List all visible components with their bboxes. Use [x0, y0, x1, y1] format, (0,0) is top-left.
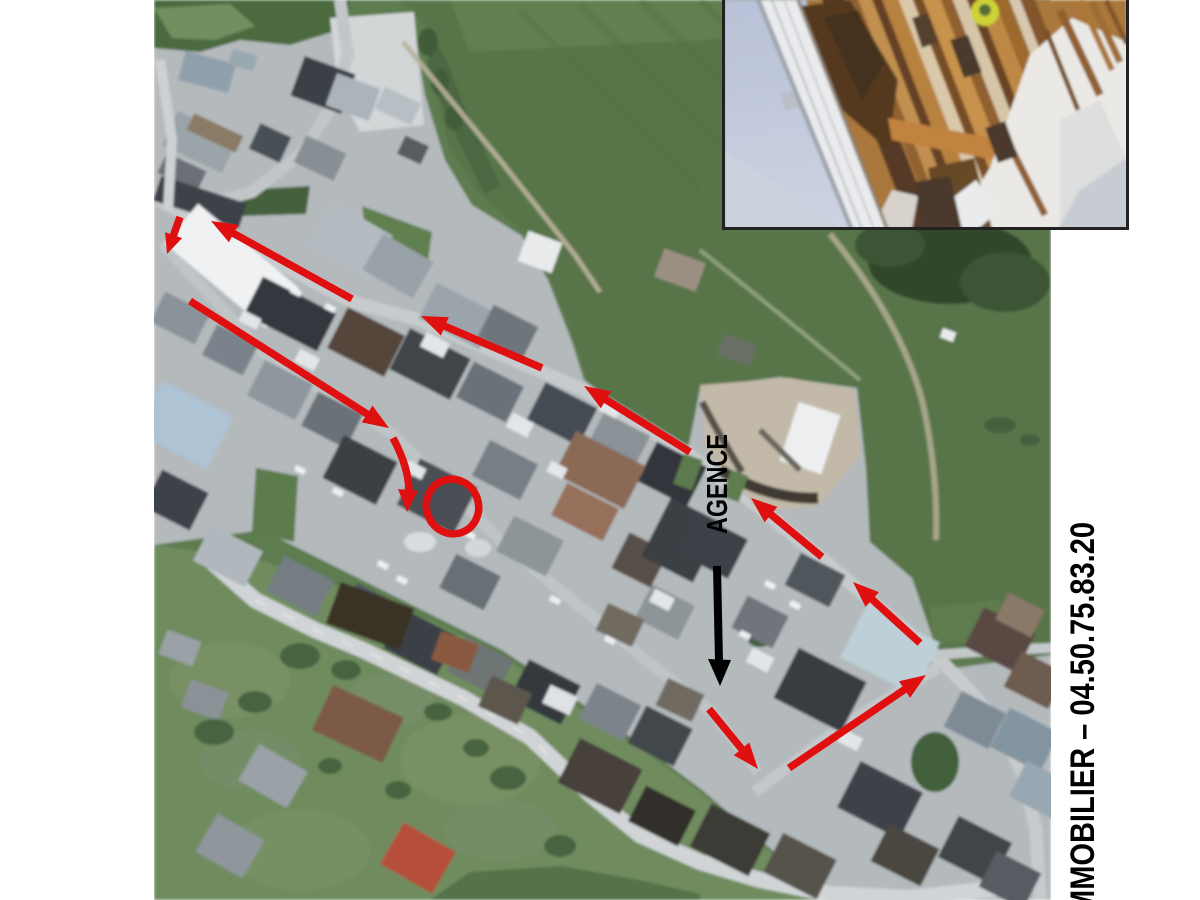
svg-text:IMMOBILIER – 04.50.75.83.20: IMMOBILIER – 04.50.75.83.20: [1064, 522, 1102, 900]
svg-text:AGENCE: AGENCE: [702, 434, 734, 534]
